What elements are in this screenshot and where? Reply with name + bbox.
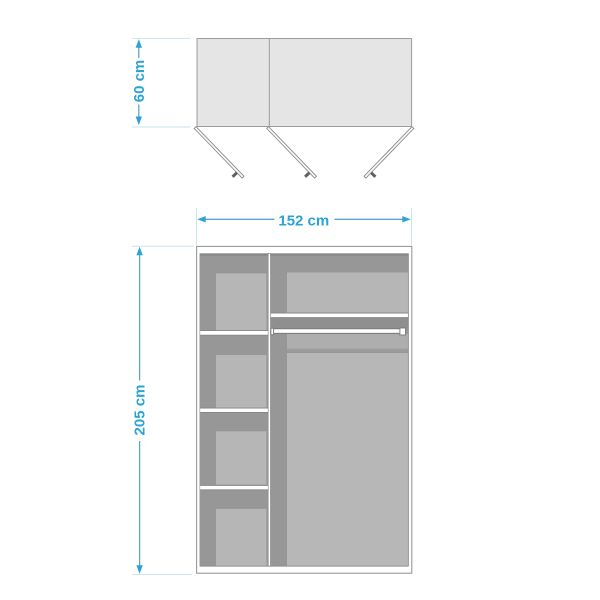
svg-text:60 cm: 60 cm: [131, 60, 148, 103]
svg-text:205 cm: 205 cm: [131, 385, 148, 436]
svg-text:152 cm: 152 cm: [278, 213, 329, 230]
